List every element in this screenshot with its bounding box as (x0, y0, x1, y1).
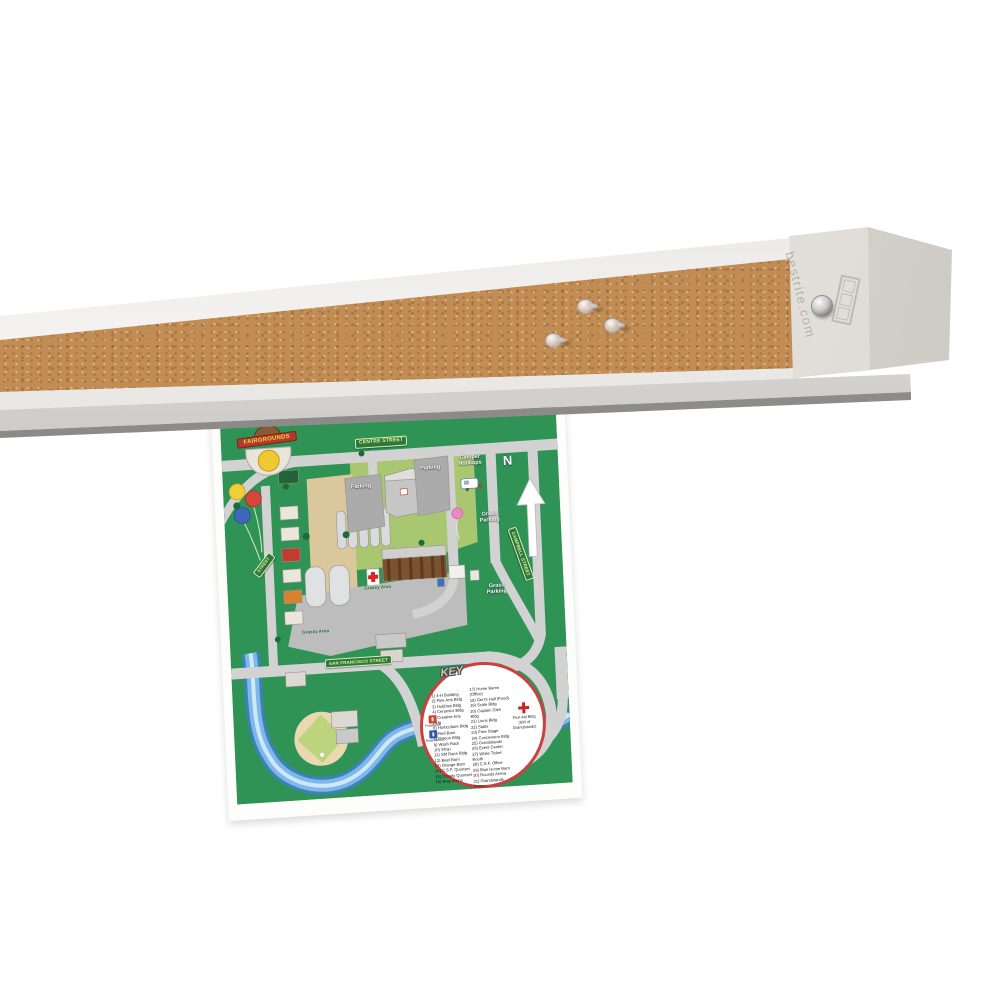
map-key-title: KEY (440, 664, 464, 679)
first-aid-entry: First Aid Bldg (SW of Grandstands) (508, 701, 540, 731)
product-photo-scene: FAIRGROUNDS CENTRE STREET SAN FRANCISCO … (0, 0, 1000, 1000)
map-key-side-icons: Food/Drink Restrooms (423, 713, 442, 744)
food-drink-icon (428, 715, 436, 724)
label-grass-parking-north: Grass Parking (472, 510, 507, 525)
pushpin-shadow (621, 326, 630, 331)
pushpin-shadow (594, 307, 603, 312)
fairgrounds-map: FAIRGROUNDS CENTRE STREET SAN FRANCISCO … (220, 407, 572, 805)
first-aid-label: First Aid Bldg (SW of Grandstands) (509, 714, 541, 731)
label-grass-parking-south: Grass Parking (480, 582, 515, 597)
pushpin-shadow (562, 341, 571, 346)
restrooms-icon (429, 730, 437, 739)
fairgrounds-map-paper: FAIRGROUNDS CENTRE STREET SAN FRANCISCO … (211, 394, 583, 821)
pushpin-1 (545, 333, 571, 355)
pushpin-3 (604, 318, 630, 340)
endcap-screw (811, 295, 833, 317)
pushpin-2 (577, 299, 603, 321)
fairgrounds-logo: FAIRGROUNDS (236, 424, 298, 482)
map-key-column-2: 17) Horse Barns (Office)18) Gert's Hall … (469, 684, 514, 794)
first-aid-cross-icon (518, 702, 529, 714)
label-camper-hookups: Camper Hookups (453, 453, 488, 468)
food-drink-label: Food/Drink (424, 724, 442, 729)
key-entry: 32) Stalling Office (474, 787, 514, 795)
label-north: N (503, 454, 513, 470)
